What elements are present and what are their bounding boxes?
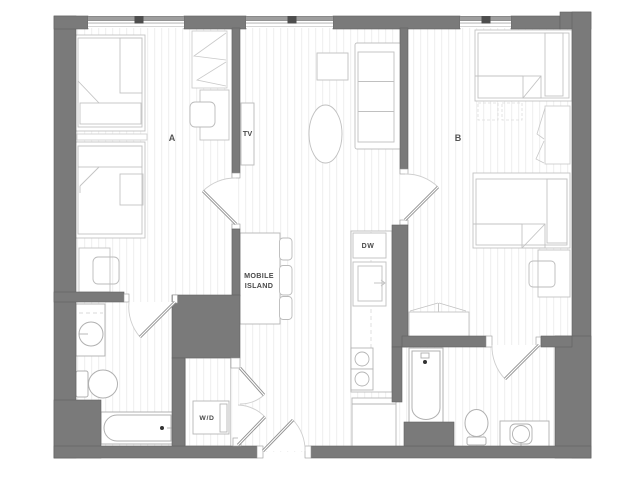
svg-text:ISLAND: ISLAND: [245, 281, 274, 290]
svg-text:TV: TV: [243, 129, 253, 138]
svg-text:MOBILE: MOBILE: [244, 271, 274, 280]
svg-text:B: B: [455, 133, 462, 143]
svg-text:A: A: [169, 133, 176, 143]
svg-text:DW: DW: [362, 243, 375, 250]
svg-text:W/D: W/D: [199, 415, 214, 422]
